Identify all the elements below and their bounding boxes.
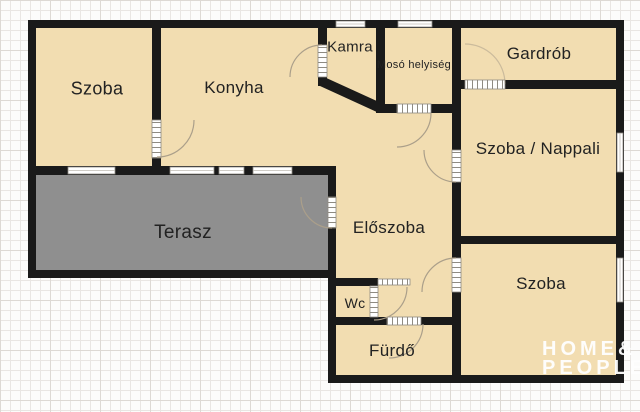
door-leaf-szoba-konyha	[152, 120, 161, 158]
room-label-szoba-bottom: Szoba	[516, 274, 566, 294]
wall-left	[28, 20, 36, 278]
wall-terrace-right-b	[328, 228, 336, 383]
room-label-furdo: Fürdő	[369, 341, 415, 361]
door-leaf-kamra	[318, 45, 327, 77]
room-label-konyha: Konyha	[204, 78, 263, 98]
wall-kamra-left-a	[318, 20, 327, 45]
window-right-nappali	[617, 133, 623, 172]
door-leaf-terasz	[328, 197, 336, 228]
room-label-kamra: Kamra	[327, 39, 373, 56]
door-leaf-gardrob	[465, 80, 505, 89]
door-leaf-furdo	[387, 317, 421, 325]
window-terrace-3	[219, 167, 244, 174]
room-label-szoba-top-left: Szoba	[71, 79, 124, 100]
watermark-line2: PEOPLE	[542, 359, 640, 378]
watermark-logo: HOME& PEOPLE	[542, 340, 640, 378]
room-label-moso-helyiseg: Mosó helyiség	[377, 59, 451, 71]
room-label-wc: Wc	[345, 295, 366, 311]
door-leaf-nappali	[452, 150, 461, 182]
window-terrace-1	[68, 167, 115, 174]
wall-spine-b	[452, 182, 461, 258]
window-top-moso	[398, 21, 432, 27]
wall-terrace-right-a	[328, 166, 336, 197]
floor-plan: Szoba Konyha Kamra Mosó helyiség Gardrób…	[0, 0, 640, 412]
wall-right	[616, 20, 624, 383]
wall-nappali-szoba	[452, 236, 624, 244]
wall-szoba-konyha-a	[152, 28, 161, 120]
wall-spine-c	[452, 292, 461, 383]
room-label-terasz: Terasz	[154, 222, 212, 244]
wall-terrace-bottom	[28, 270, 336, 278]
wall-szoba-konyha-b	[152, 158, 161, 173]
room-label-szoba-nappali: Szoba / Nappali	[476, 139, 601, 159]
room-label-eloszoba: Előszoba	[353, 218, 425, 238]
door-leaf-szoba-bottom	[452, 258, 461, 292]
window-terrace-4	[253, 167, 292, 174]
door-leaf-wc-open	[378, 279, 410, 285]
door-leaf-moso	[397, 104, 431, 113]
window-top-kamra	[336, 21, 365, 27]
room-label-gardrob: Gardrób	[507, 44, 571, 64]
window-right-szoba	[617, 258, 623, 302]
door-leaf-wc	[370, 286, 378, 317]
window-terrace-2	[170, 167, 214, 174]
